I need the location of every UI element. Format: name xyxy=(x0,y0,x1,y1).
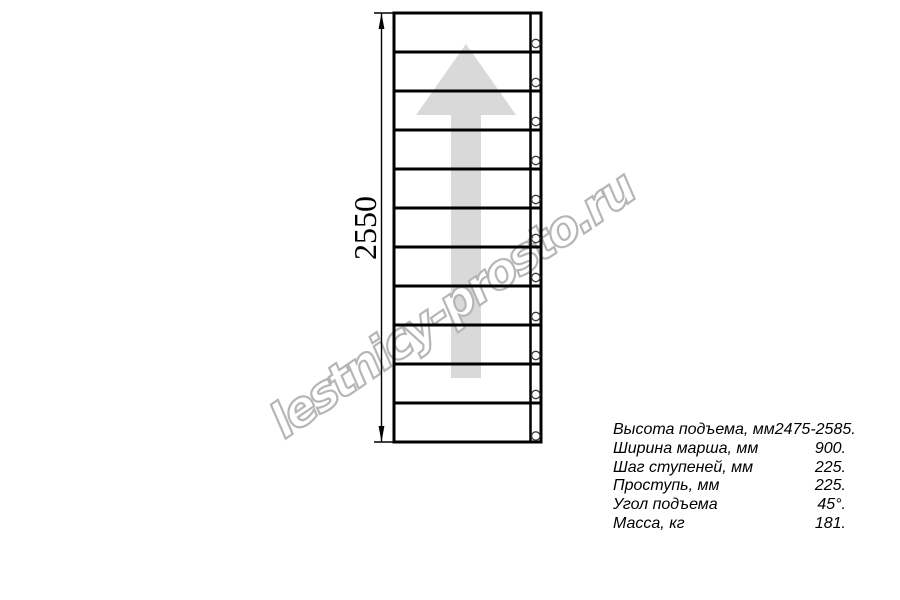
spec-value: 181. xyxy=(815,515,846,534)
spec-row-mass: Масса, кг 181. xyxy=(613,515,846,534)
bolt-circle xyxy=(532,39,540,47)
spec-row-step-pitch: Шаг ступеней, мм 225. xyxy=(613,459,846,478)
bolt-circle xyxy=(532,195,540,203)
spec-row-height: Высота подъема, мм 2475-2585. xyxy=(613,421,846,440)
bolt-circle xyxy=(532,312,540,320)
spec-row-width: Ширина марша, мм 900. xyxy=(613,440,846,459)
dimension-label: 2550 xyxy=(347,196,383,260)
bolt-circle xyxy=(532,156,540,164)
bolt-circle xyxy=(532,351,540,359)
dimension-arrowhead-bottom-icon xyxy=(379,426,385,442)
spec-label: Масса, кг xyxy=(613,515,685,534)
spec-label: Шаг ступеней, мм xyxy=(613,459,753,478)
specs-table: Высота подъема, мм 2475-2585. Ширина мар… xyxy=(613,421,846,534)
spec-value: 2475-2585. xyxy=(775,421,856,440)
spec-label: Проступь, мм xyxy=(613,477,719,496)
spec-row-angle: Угол подъема 45°. xyxy=(613,496,846,515)
dimension-arrowhead-top-icon xyxy=(379,13,385,29)
spec-value: 225. xyxy=(815,477,846,496)
drawing-canvas: lestnicy-prosto.ru 2550 Высота подъема, … xyxy=(0,0,900,600)
spec-value: 225. xyxy=(815,459,846,478)
spec-label: Высота подъема, мм xyxy=(613,421,775,440)
spec-label: Угол подъема xyxy=(613,496,718,515)
spec-value: 45°. xyxy=(817,496,846,515)
spec-value: 900. xyxy=(815,440,846,459)
bolt-circle xyxy=(532,117,540,125)
bolt-circle xyxy=(532,390,540,398)
bolt-circle xyxy=(532,432,540,440)
bolt-circle xyxy=(532,78,540,86)
spec-label: Ширина марша, мм xyxy=(613,440,758,459)
spec-row-tread: Проступь, мм 225. xyxy=(613,477,846,496)
